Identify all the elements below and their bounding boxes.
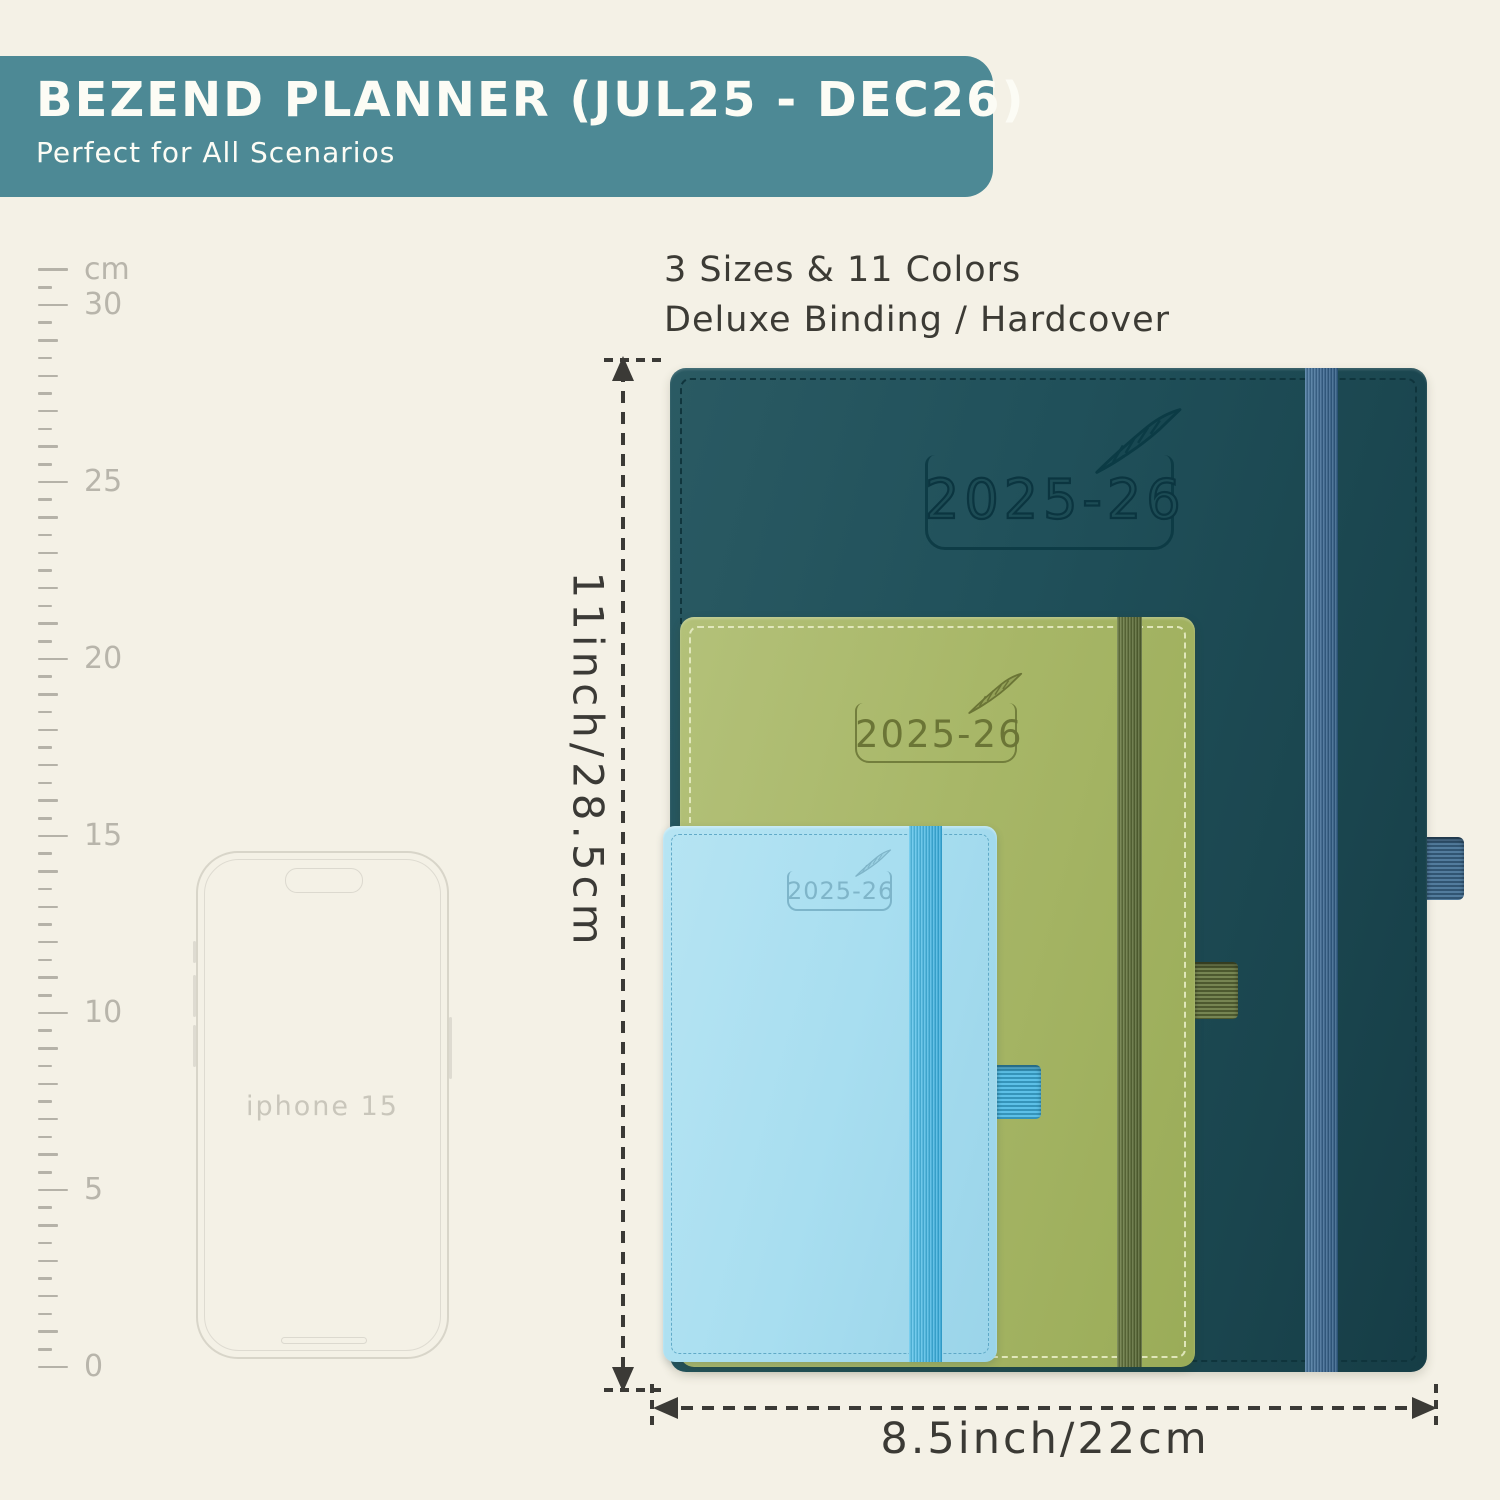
pen-loop <box>1195 962 1238 1019</box>
extension-line-top <box>604 358 666 362</box>
ruler-tick <box>38 976 58 979</box>
ruler-tick <box>38 1242 52 1245</box>
ruler-tick <box>38 1224 58 1227</box>
ruler-tick <box>38 1206 52 1209</box>
ruler-tick <box>38 268 68 271</box>
ruler-tick <box>38 498 52 501</box>
ruler-label: 20 <box>84 643 154 675</box>
ruler-tick <box>38 463 52 466</box>
iphone-side-button <box>449 1017 452 1079</box>
ruler-tick <box>38 375 58 378</box>
ruler-tick <box>38 729 58 732</box>
ruler-tick <box>38 817 52 820</box>
ruler-tick <box>38 1330 58 1333</box>
extension-line-left <box>650 1384 654 1430</box>
ruler-tick <box>38 658 68 661</box>
ruler-tick <box>38 481 68 484</box>
ruler-tick <box>38 1029 52 1032</box>
ruler-label: 5 <box>84 1174 154 1206</box>
extension-line-right <box>1434 1384 1438 1430</box>
ruler-tick <box>38 587 58 590</box>
arrow-left-icon <box>653 1397 678 1419</box>
ruler-tick <box>38 870 58 873</box>
ruler-tick <box>38 569 52 572</box>
height-dimension-label: 11inch/28.5cm <box>564 541 613 981</box>
ruler-tick <box>38 445 58 448</box>
ruler-tick <box>38 622 58 625</box>
ruler-tick <box>38 516 58 519</box>
pen-loop <box>1427 837 1464 900</box>
ruler-tick <box>38 392 52 395</box>
ruler-tick <box>38 693 58 696</box>
ruler-label: 0 <box>84 1351 154 1383</box>
ruler-tick <box>38 1277 52 1280</box>
ruler-tick <box>38 1366 68 1369</box>
ruler-tick <box>38 1012 68 1015</box>
ruler-tick <box>38 835 68 838</box>
year-emboss: 2025-26 <box>855 713 1013 756</box>
ruler-tick <box>38 428 52 431</box>
ruler-tick <box>38 675 52 678</box>
feature-line-2: Deluxe Binding / Hardcover <box>664 296 1170 346</box>
ruler-tick <box>38 605 52 608</box>
ruler-tick <box>38 1313 52 1316</box>
iphone-outline: iphone 15 <box>196 851 449 1359</box>
iphone-volume-up-button <box>193 975 196 1017</box>
elastic-band <box>1117 617 1142 1367</box>
elastic-band <box>909 826 942 1362</box>
iphone-dynamic-island <box>285 868 363 893</box>
ruler-tick <box>38 286 52 289</box>
pen-loop <box>997 1065 1041 1119</box>
ruler-label: 10 <box>84 997 154 1029</box>
ruler-tick <box>38 746 52 749</box>
ruler-tick <box>38 906 58 909</box>
ruler: 051015202530cm <box>38 0 168 1500</box>
ruler-tick <box>38 1189 68 1192</box>
ruler-tick <box>38 1118 58 1121</box>
ruler-tick <box>38 1136 52 1139</box>
ruler-label: 25 <box>84 466 154 498</box>
ruler-tick <box>38 1153 58 1156</box>
ruler-label: 30 <box>84 289 154 321</box>
ruler-tick <box>38 1100 52 1103</box>
ruler-tick <box>38 410 58 413</box>
ruler-label: 15 <box>84 820 154 852</box>
elastic-band <box>1305 368 1338 1372</box>
page-subtitle: Perfect for All Scenarios <box>36 136 993 169</box>
ruler-tick <box>38 1348 52 1351</box>
ruler-tick <box>38 941 58 944</box>
iphone-mute-switch <box>193 941 196 963</box>
year-emboss: 2025-26 <box>925 468 1168 531</box>
ruler-tick <box>38 1295 58 1298</box>
ruler-tick <box>38 304 68 307</box>
feature-line-1: 3 Sizes & 11 Colors <box>664 246 1170 296</box>
page-title: BEZEND PLANNER (JUL25 - DEC26) <box>36 72 993 128</box>
ruler-label: cm <box>84 254 154 286</box>
ruler-tick <box>38 959 52 962</box>
height-dimension-line <box>621 370 625 1388</box>
feature-text: 3 Sizes & 11 Colors Deluxe Binding / Har… <box>664 246 1170 345</box>
ruler-tick <box>38 852 52 855</box>
planner-small: 2025-26 <box>663 826 997 1362</box>
ruler-tick <box>38 923 52 926</box>
product-image: BEZEND PLANNER (JUL25 - DEC26) Perfect f… <box>0 0 1500 1500</box>
extension-line-bottom <box>604 1388 666 1392</box>
ruler-tick <box>38 640 52 643</box>
ruler-tick <box>38 534 52 537</box>
year-emboss: 2025-26 <box>787 877 888 905</box>
width-dimension-label: 8.5inch/22cm <box>845 1414 1245 1464</box>
width-dimension-line <box>660 1406 1432 1410</box>
ruler-tick <box>38 1047 58 1050</box>
ruler-tick <box>38 994 52 997</box>
iphone-volume-down-button <box>193 1025 196 1067</box>
iphone-speaker-slot <box>281 1337 367 1344</box>
ruler-tick <box>38 552 58 555</box>
ruler-tick <box>38 764 58 767</box>
ruler-tick <box>38 339 58 342</box>
ruler-tick <box>38 888 52 891</box>
ruler-tick <box>38 799 58 802</box>
ruler-tick <box>38 782 52 785</box>
ruler-tick <box>38 1083 58 1086</box>
ruler-tick <box>38 1065 52 1068</box>
ruler-tick <box>38 711 52 714</box>
ruler-tick <box>38 321 52 324</box>
ruler-tick <box>38 357 52 360</box>
ruler-tick <box>38 1171 52 1174</box>
iphone-label: iphone 15 <box>198 1091 447 1122</box>
ruler-tick <box>38 1260 58 1263</box>
